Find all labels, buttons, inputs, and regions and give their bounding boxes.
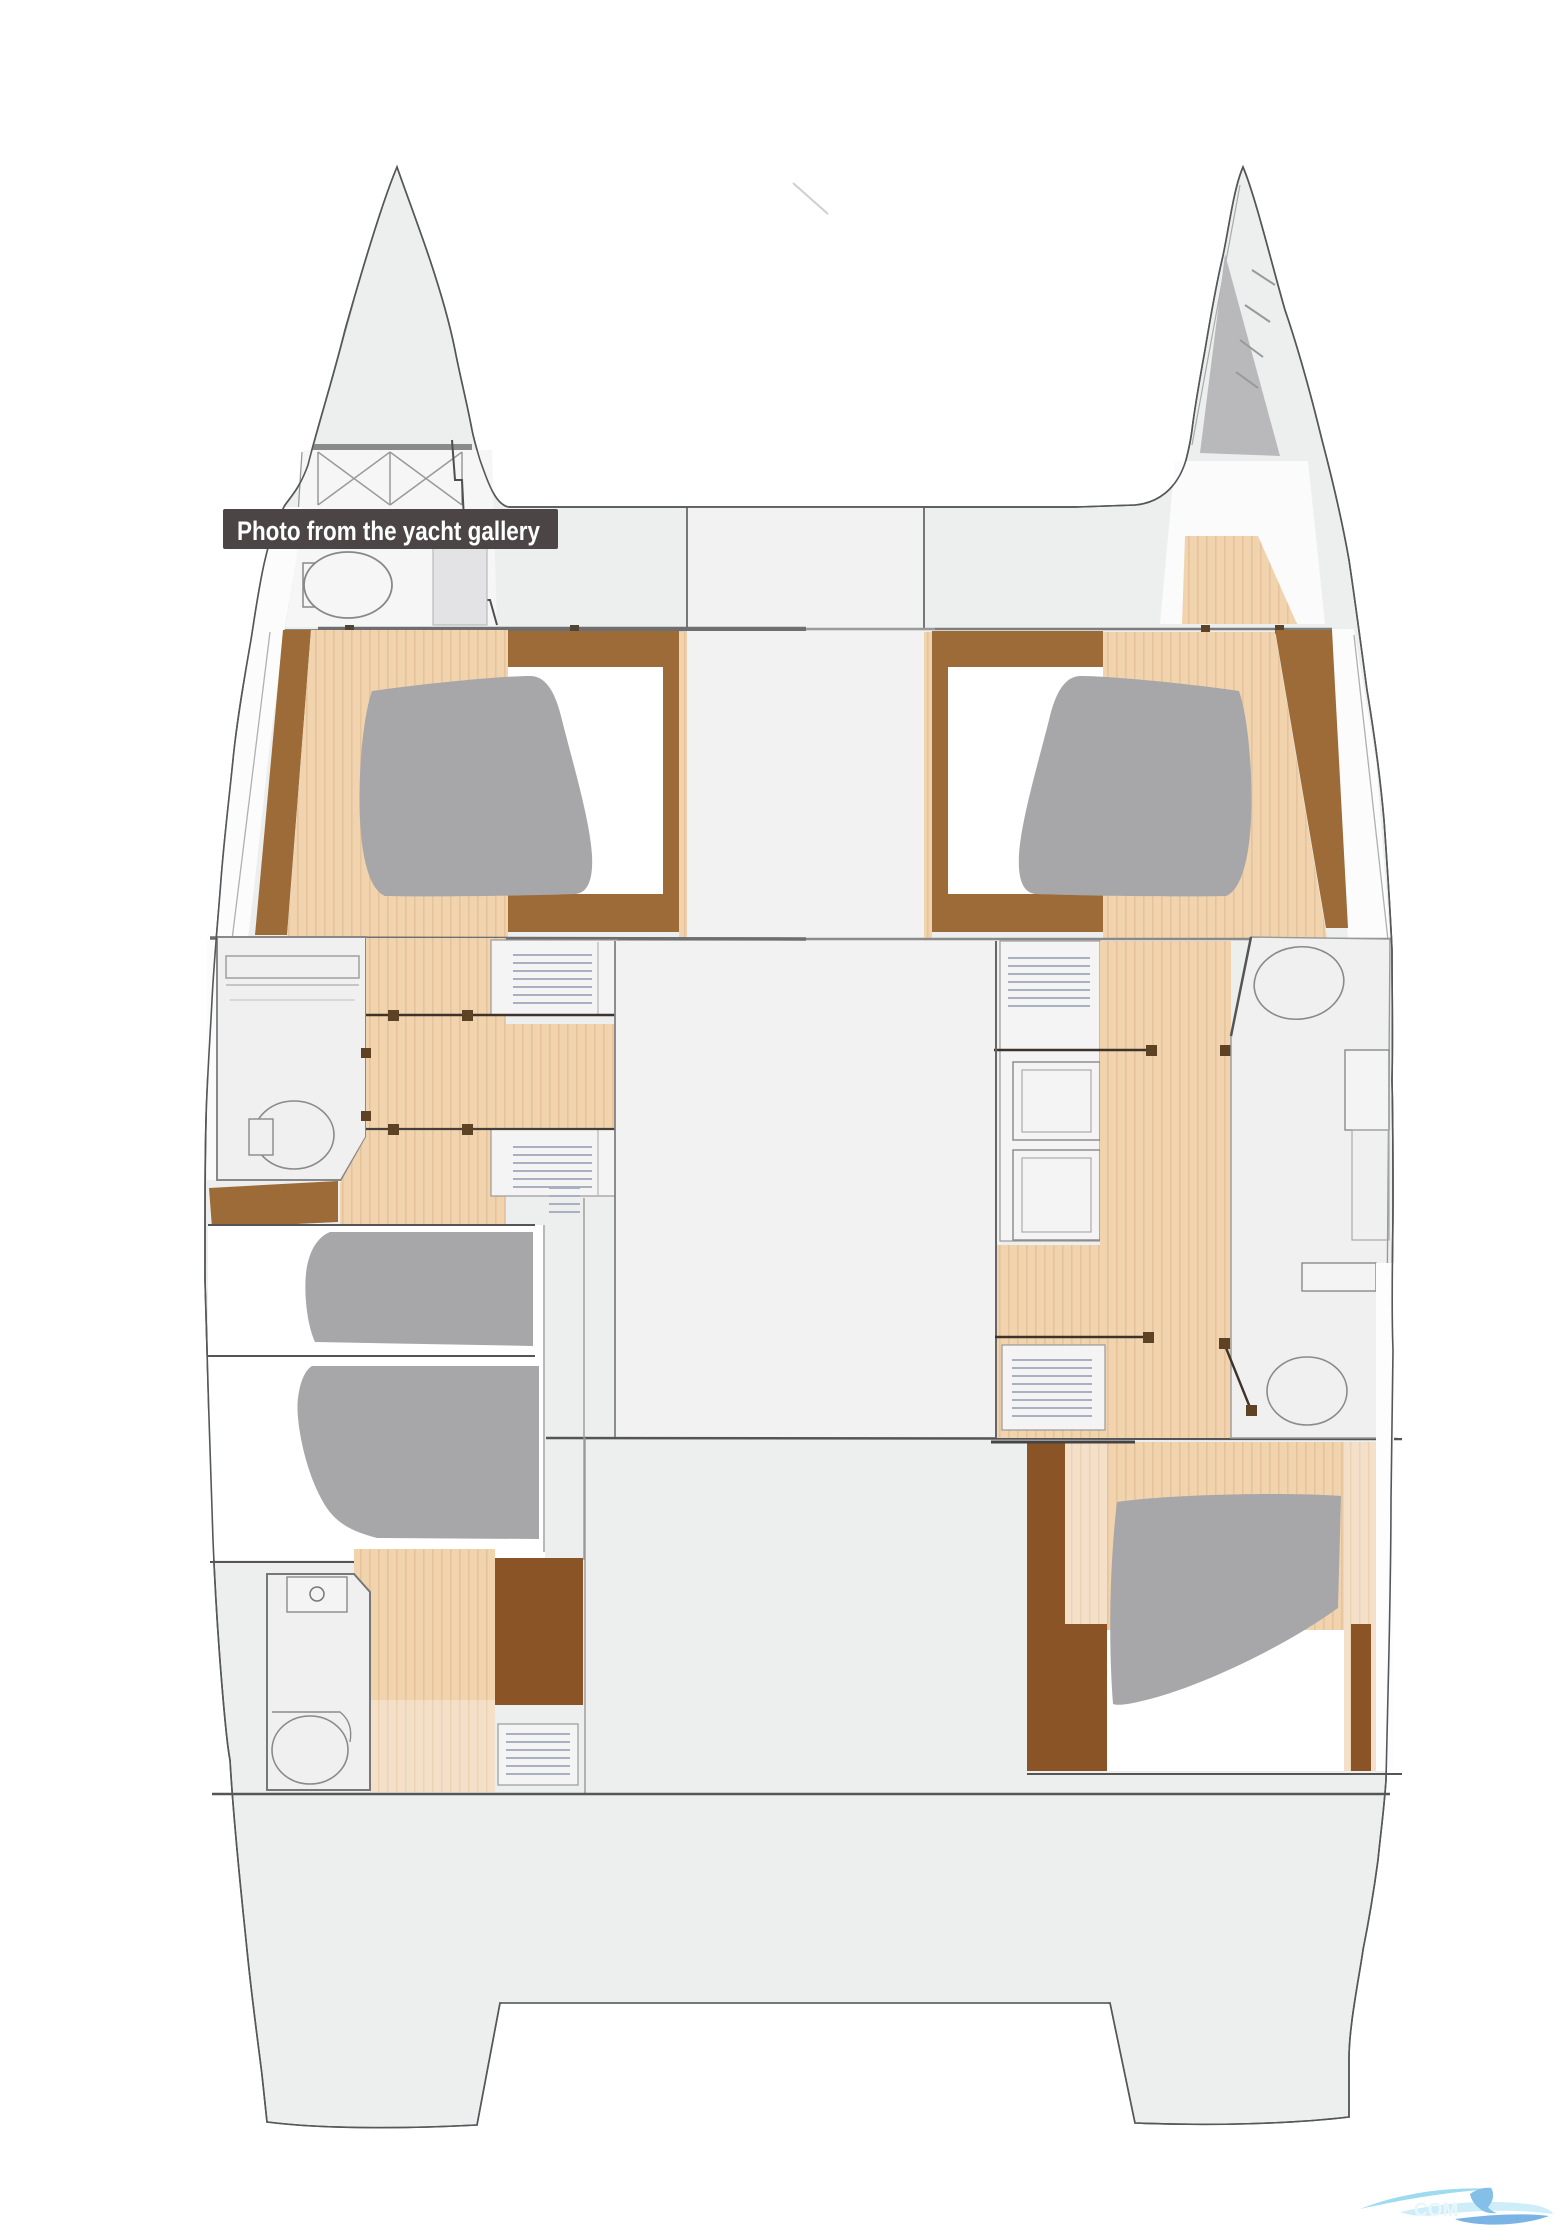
svg-text:COM: COM — [1414, 2200, 1458, 2221]
svg-text:Photo from the yacht gallery: Photo from the yacht gallery — [237, 516, 540, 546]
